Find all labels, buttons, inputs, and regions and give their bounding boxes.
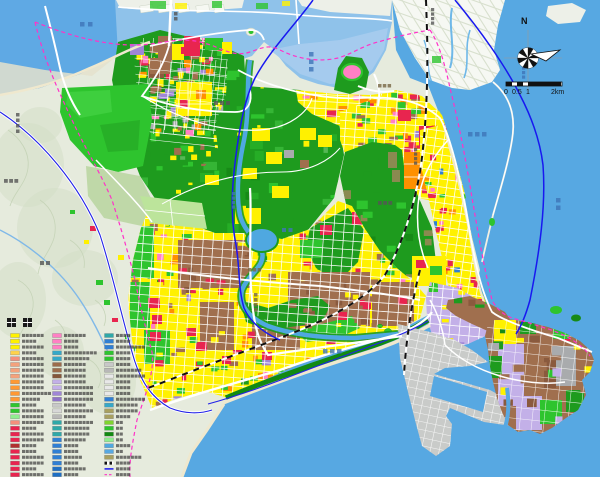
svg-text:N: N (521, 16, 528, 26)
svg-text:2km: 2km (551, 89, 564, 96)
svg-text:0: 0 (504, 89, 508, 96)
svg-text:1: 1 (526, 89, 530, 96)
svg-text:0.5: 0.5 (512, 89, 522, 96)
